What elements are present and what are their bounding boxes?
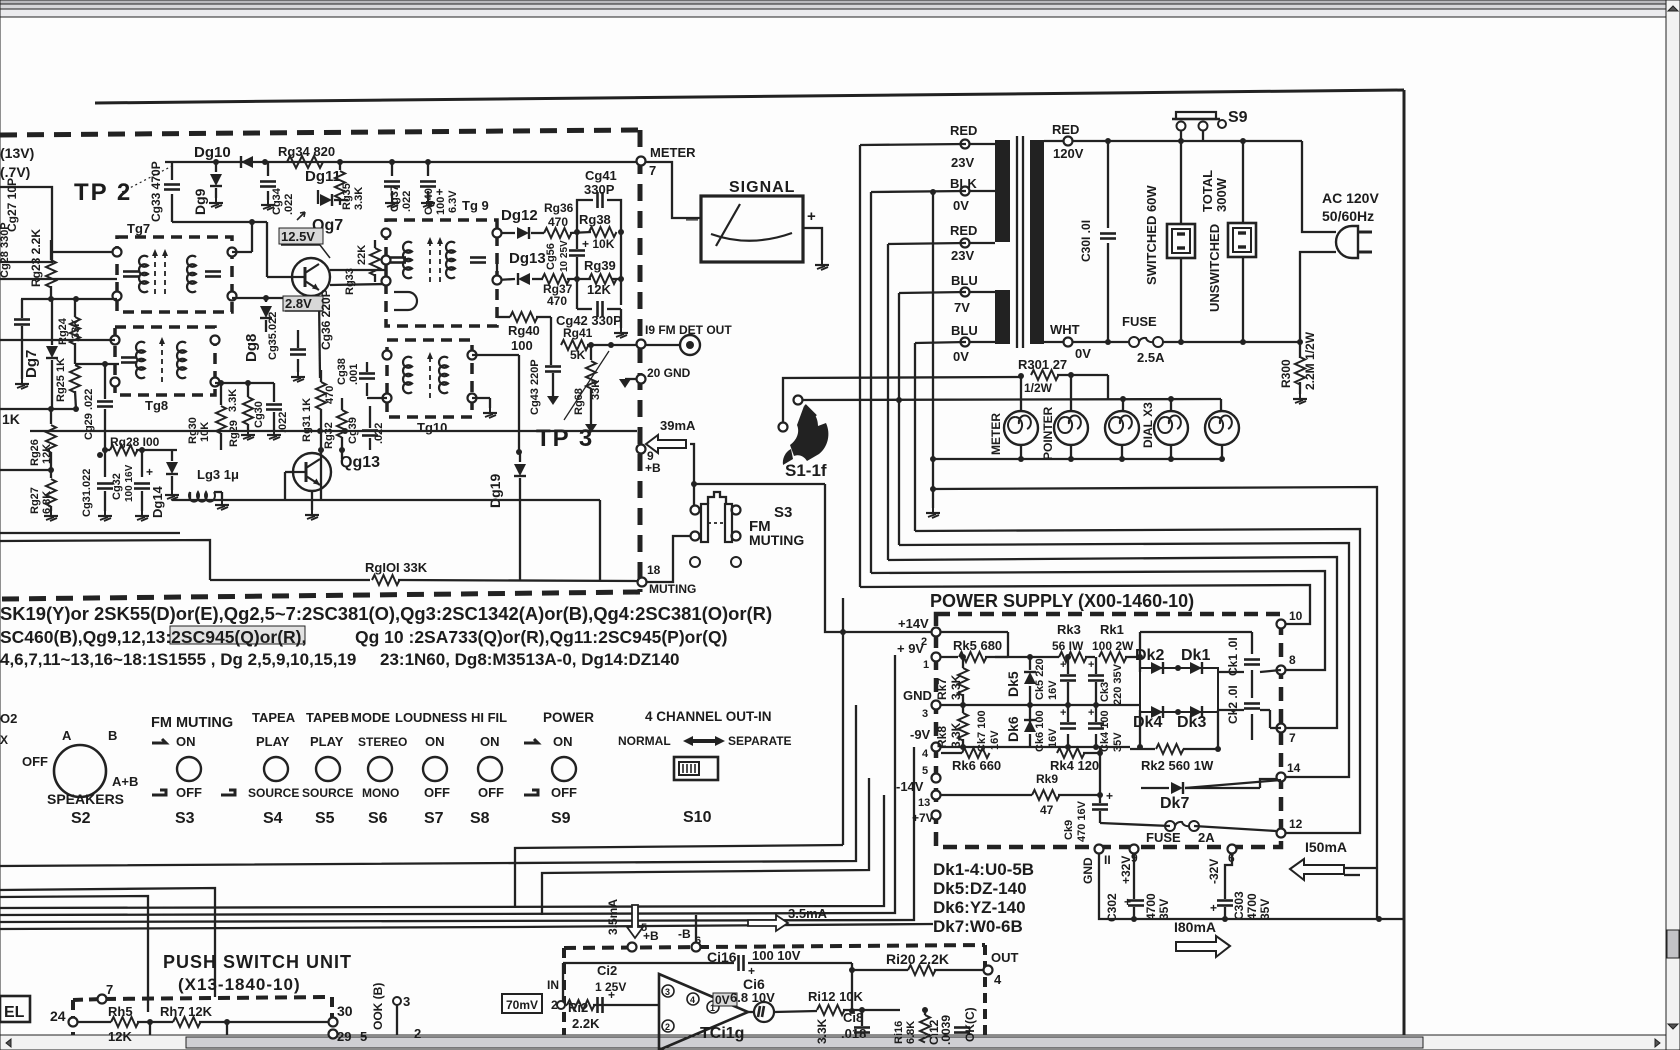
svg-text:20 GND: 20 GND [647, 366, 691, 380]
svg-text:C303: C303 [1232, 891, 1246, 920]
svg-text:Rk8: Rk8 [935, 726, 949, 748]
svg-text:18: 18 [647, 563, 661, 577]
svg-text:50/60Hz: 50/60Hz [1322, 208, 1374, 224]
svg-text:0V: 0V [953, 198, 969, 213]
svg-text:MUTING: MUTING [649, 582, 696, 596]
svg-text:Ck7 100: Ck7 100 [976, 710, 988, 752]
svg-text:Cg29 .022: Cg29 .022 [83, 389, 95, 440]
svg-text:OFF: OFF [424, 785, 450, 800]
svg-text:MODE: MODE [351, 710, 390, 725]
svg-text:SIGNAL: SIGNAL [729, 179, 795, 196]
svg-text:(.7V): (.7V) [0, 164, 30, 180]
svg-text:Rg38: Rg38 [579, 212, 611, 227]
svg-text:SWITCHED 60W: SWITCHED 60W [1144, 185, 1159, 285]
svg-text:FUSE: FUSE [1122, 314, 1157, 329]
svg-text:AC 120V: AC 120V [1322, 190, 1379, 206]
svg-text:S8: S8 [470, 810, 490, 827]
svg-text:.0039: .0039 [939, 1015, 953, 1045]
svg-text:BLU: BLU [951, 273, 978, 288]
svg-text:OFF: OFF [22, 754, 48, 769]
svg-text:A: A [62, 728, 72, 743]
svg-text:8: 8 [1289, 653, 1296, 667]
svg-text:12K: 12K [587, 282, 611, 297]
svg-text:S3: S3 [774, 504, 792, 521]
svg-text:HI FIL: HI FIL [471, 710, 507, 725]
svg-text:Rg33: Rg33 [344, 268, 356, 295]
svg-text:S9: S9 [551, 810, 571, 827]
svg-text:10 25V: 10 25V [559, 240, 570, 272]
svg-text:470 16V: 470 16V [1076, 800, 1088, 842]
svg-text:23:1N60, Dg8:M3513A-0, Dg14:DZ: 23:1N60, Dg8:M3513A-0, Dg14:DZ140 [380, 650, 680, 669]
svg-text:Rk1: Rk1 [1100, 622, 1124, 637]
svg-text:7V: 7V [954, 300, 970, 315]
svg-text:TCi1g: TCi1g [700, 1025, 744, 1042]
svg-text:+32V: +32V [1119, 856, 1133, 884]
svg-text:Ck9: Ck9 [1063, 820, 1075, 840]
svg-text:+: + [1124, 895, 1131, 909]
svg-text:I50mA: I50mA [1305, 839, 1347, 855]
svg-text:C302: C302 [1105, 893, 1119, 922]
svg-text:Dg7: Dg7 [23, 350, 40, 378]
svg-text:SC460(B),Qg9,12,13:2SC945(Q)or: SC460(B),Qg9,12,13:2SC945(Q)or(R), [0, 627, 306, 647]
svg-text:+: + [1088, 707, 1094, 719]
svg-text:Rg35: Rg35 [341, 183, 353, 210]
svg-text:S4: S4 [263, 810, 283, 827]
svg-text:IN: IN [547, 978, 559, 992]
svg-text:GND: GND [903, 688, 932, 703]
svg-text:+ 10K: + 10K [582, 237, 615, 251]
svg-text:TP 3: TP 3 [536, 425, 594, 452]
svg-text:23V: 23V [951, 155, 974, 170]
svg-text:Ri16: Ri16 [893, 1021, 905, 1044]
svg-text:+7V: +7V [912, 811, 934, 825]
svg-text:Dk3: Dk3 [1177, 714, 1206, 731]
svg-text:TP 2: TP 2 [74, 179, 132, 206]
svg-text:30: 30 [337, 1003, 353, 1019]
svg-text:16V: 16V [1047, 680, 1059, 700]
svg-text:Cg35.022: Cg35.022 [267, 312, 279, 360]
svg-text:3: 3 [403, 994, 410, 1009]
svg-text:2.8V: 2.8V [285, 296, 312, 311]
svg-text:4 CHANNEL OUT-IN: 4 CHANNEL OUT-IN [645, 709, 772, 724]
svg-text:3.5mA: 3.5mA [788, 906, 828, 921]
svg-text:OFF: OFF [478, 785, 504, 800]
svg-text:WHT: WHT [1050, 322, 1080, 337]
svg-text:22K: 22K [356, 245, 368, 265]
svg-text:TOTAL: TOTAL [1200, 170, 1215, 212]
svg-text:23V: 23V [951, 248, 974, 263]
svg-text:Tg 9: Tg 9 [462, 198, 489, 213]
svg-text:S2: S2 [71, 810, 91, 827]
svg-text:4: 4 [690, 995, 695, 1005]
svg-text:4700: 4700 [1245, 893, 1259, 920]
svg-text:2.2M 1/2W: 2.2M 1/2W [1303, 331, 1317, 390]
svg-text:3.3K: 3.3K [227, 389, 239, 412]
svg-text:+: + [436, 185, 443, 199]
svg-text:.022: .022 [277, 412, 289, 433]
svg-text:PUSH SWITCH UNIT: PUSH SWITCH UNIT [163, 952, 352, 972]
svg-text:Dg13: Dg13 [509, 250, 546, 267]
svg-text:Rk2 560 1W: Rk2 560 1W [1141, 758, 1214, 773]
svg-text:Cg56: Cg56 [545, 243, 557, 270]
svg-text:OUT: OUT [991, 950, 1019, 965]
svg-text:Dk1: Dk1 [1181, 647, 1210, 664]
svg-text:RED: RED [1052, 122, 1079, 137]
svg-text:3.3K: 3.3K [949, 722, 963, 748]
svg-text:Rh7 12K: Rh7 12K [160, 1004, 213, 1019]
svg-text:.022: .022 [373, 423, 385, 444]
svg-text:MONO: MONO [362, 786, 399, 800]
svg-text:Tg10: Tg10 [417, 420, 447, 435]
svg-text:Dk6: Dk6 [1005, 716, 1021, 742]
svg-text:12K: 12K [108, 1029, 132, 1044]
svg-text:35V: 35V [1157, 899, 1171, 920]
svg-text:12.5V: 12.5V [281, 229, 315, 244]
svg-text:Rg36: Rg36 [544, 201, 574, 215]
svg-text:ON: ON [176, 734, 196, 749]
svg-text:Rg25 1K: Rg25 1K [55, 358, 67, 402]
svg-text:RED: RED [950, 123, 977, 138]
svg-text:R300: R300 [1279, 359, 1293, 388]
svg-text:7: 7 [1289, 731, 1296, 745]
svg-text:ON: ON [480, 734, 500, 749]
svg-text:B: B [108, 728, 117, 743]
svg-text:Dg19: Dg19 [487, 474, 503, 508]
svg-text:SK19(Y)or 2SK55(D)or(E),Qg2,5~: SK19(Y)or 2SK55(D)or(E),Qg2,5~7:2SC381(O… [0, 603, 772, 624]
svg-text:0V: 0V [1075, 346, 1091, 361]
svg-text:ON: ON [553, 734, 573, 749]
svg-text:14: 14 [1287, 761, 1301, 775]
svg-text:Cg32: Cg32 [111, 473, 123, 500]
svg-text:100: 100 [511, 338, 533, 353]
svg-text:LOUDNESS: LOUDNESS [395, 710, 468, 725]
svg-text:POINTER: POINTER [1041, 406, 1055, 460]
svg-text:Cg41: Cg41 [585, 168, 617, 183]
svg-text:+: + [1210, 901, 1217, 915]
svg-text:470: 470 [547, 294, 567, 308]
svg-text:PLAY: PLAY [256, 734, 290, 749]
svg-text:Dg11: Dg11 [305, 168, 341, 185]
svg-text:0V: 0V [953, 349, 969, 364]
svg-text:NORMAL: NORMAL [618, 734, 671, 748]
svg-text:RED: RED [950, 223, 977, 238]
svg-text:47: 47 [1040, 803, 1054, 817]
svg-text:OOK (B): OOK (B) [371, 983, 385, 1030]
svg-text:Dk5: Dk5 [1005, 671, 1021, 697]
svg-text:5: 5 [641, 922, 647, 934]
svg-text:DIAL X3: DIAL X3 [1141, 402, 1155, 448]
svg-text:EL: EL [4, 1004, 25, 1021]
svg-text:I80mA: I80mA [1174, 919, 1216, 935]
svg-text:3.3K: 3.3K [815, 1018, 829, 1044]
svg-text:6.3V: 6.3V [447, 190, 459, 213]
svg-text:FUSE: FUSE [1146, 830, 1181, 845]
svg-text:-14V: -14V [896, 779, 924, 794]
svg-text:5K: 5K [570, 348, 586, 362]
svg-text:A+B: A+B [112, 774, 138, 789]
svg-text:Rg28 I00: Rg28 I00 [110, 435, 160, 449]
svg-text:35V: 35V [1112, 732, 1124, 752]
svg-text:Cg28 330P: Cg28 330P [0, 222, 11, 278]
svg-text:1/2W: 1/2W [1024, 381, 1053, 395]
svg-text:70mV: 70mV [506, 998, 538, 1012]
svg-text:0V: 0V [715, 993, 730, 1007]
svg-text:4: 4 [994, 972, 1002, 987]
svg-text:POWER SUPPLY (X00-1460-10): POWER SUPPLY (X00-1460-10) [930, 591, 1194, 611]
svg-text:Ck3: Ck3 [1099, 682, 1111, 702]
svg-text:100 2W: 100 2W [1092, 639, 1134, 653]
svg-text:3: 3 [665, 987, 670, 997]
svg-text:Rk9: Rk9 [1036, 772, 1058, 786]
svg-text:S5: S5 [315, 810, 335, 827]
svg-text:Cg34: Cg34 [271, 187, 283, 215]
svg-text:S3: S3 [175, 810, 195, 827]
svg-text:6.8 10V: 6.8 10V [730, 990, 775, 1005]
svg-text:Dk7:W0-6B: Dk7:W0-6B [933, 917, 1023, 936]
svg-text:35V: 35V [1258, 899, 1272, 920]
svg-text:OFF: OFF [551, 785, 577, 800]
svg-text:(13V): (13V) [0, 145, 34, 161]
svg-text:UNSWITCHED: UNSWITCHED [1207, 224, 1222, 312]
svg-text:Tg7: Tg7 [127, 221, 150, 236]
svg-text:+: + [1088, 659, 1094, 671]
svg-text:220 35V: 220 35V [1112, 663, 1124, 705]
svg-text:SOURCE: SOURCE [248, 786, 299, 800]
svg-text:470: 470 [324, 386, 336, 404]
svg-text:METER: METER [650, 145, 696, 160]
svg-text:1: 1 [923, 659, 929, 671]
svg-text:Lg3 1μ: Lg3 1μ [197, 467, 239, 482]
svg-text:3: 3 [922, 708, 928, 720]
svg-text:2: 2 [665, 1022, 670, 1032]
svg-text:Dk4: Dk4 [1133, 714, 1162, 731]
svg-text:.001: .001 [348, 364, 360, 385]
svg-text:Ci2: Ci2 [597, 963, 617, 978]
svg-text:+: + [807, 208, 816, 225]
svg-text:Cg31.022: Cg31.022 [81, 469, 93, 517]
svg-text:+: + [1106, 789, 1113, 803]
svg-text:6.8K: 6.8K [905, 1021, 917, 1044]
svg-text:4,6,7,11~13,16~18:1S1555 , Dg: 4,6,7,11~13,16~18:1S1555 , Dg 2,5,9,10,1… [0, 650, 356, 669]
svg-text:2: 2 [414, 1026, 421, 1041]
svg-text:Qg13: Qg13 [340, 454, 380, 471]
svg-text:.022: .022 [283, 194, 295, 215]
svg-text:2A: 2A [1198, 830, 1215, 845]
svg-text:Rg32: Rg32 [323, 422, 335, 449]
svg-text:FM MUTING: FM MUTING [151, 715, 233, 731]
svg-text:+: + [146, 465, 153, 479]
svg-text:Rk5 680: Rk5 680 [953, 638, 1002, 653]
svg-text:Dk6:YZ-140: Dk6:YZ-140 [933, 898, 1026, 917]
svg-text:Dg9: Dg9 [192, 188, 208, 215]
svg-text:+14V: +14V [898, 616, 929, 631]
svg-text:C30I .0I: C30I .0I [1079, 220, 1093, 262]
svg-text:7: 7 [106, 982, 113, 997]
svg-text:5: 5 [922, 765, 928, 777]
svg-text:Ck1 .0I: Ck1 .0I [1226, 637, 1240, 676]
svg-text:-B: -B [678, 927, 691, 941]
svg-text:Dk5:DZ-140: Dk5:DZ-140 [933, 879, 1027, 898]
svg-text:+B: +B [645, 461, 661, 475]
svg-text:TAPEB: TAPEB [306, 710, 349, 725]
svg-text:7: 7 [649, 163, 656, 178]
svg-text:OK(C): OK(C) [963, 1007, 977, 1042]
svg-text:300W: 300W [1214, 177, 1229, 212]
svg-text:Qg 10 :2SA733(Q)or(R),Qg11:2SC: Qg 10 :2SA733(Q)or(R),Qg11:2SC945(P)or(Q… [355, 627, 727, 647]
svg-text:METER: METER [989, 413, 1003, 455]
svg-text:Ck5 220: Ck5 220 [1034, 658, 1046, 700]
svg-text:POWER: POWER [543, 710, 594, 725]
svg-text:29: 29 [337, 1029, 351, 1044]
svg-text:Dk1-4:U0-5B: Dk1-4:U0-5B [933, 860, 1034, 879]
svg-text:13: 13 [918, 797, 930, 809]
svg-text:Dg12: Dg12 [501, 207, 538, 224]
svg-text:Rk4 120: Rk4 120 [1050, 758, 1099, 773]
svg-text:2.5A: 2.5A [1137, 350, 1165, 365]
svg-text:Tg8: Tg8 [145, 398, 168, 413]
svg-text:TAPEA: TAPEA [252, 710, 296, 725]
svg-text:Ri20 2.2K: Ri20 2.2K [886, 951, 949, 967]
svg-text:SEPARATE: SEPARATE [728, 734, 792, 748]
svg-text:Rg41: Rg41 [563, 326, 593, 340]
svg-text:470: 470 [548, 215, 568, 229]
svg-text:Dg14: Dg14 [150, 485, 165, 518]
svg-text:RgIOI 33K: RgIOI 33K [365, 560, 428, 575]
svg-text:PLAY: PLAY [310, 734, 344, 749]
svg-text:Cg38: Cg38 [336, 358, 348, 385]
svg-text:-9V: -9V [910, 727, 931, 742]
svg-text:X: X [0, 733, 8, 747]
svg-text:MUTING: MUTING [749, 532, 804, 548]
svg-text:+: + [1060, 707, 1066, 719]
svg-text:Rg31 1K: Rg31 1K [301, 398, 313, 442]
svg-text:-32V: -32V [1207, 859, 1221, 884]
svg-text:O2: O2 [0, 711, 17, 726]
svg-text:S7: S7 [424, 810, 444, 827]
svg-text:Rh5: Rh5 [108, 1004, 133, 1019]
svg-text:Rk3: Rk3 [1057, 622, 1081, 637]
svg-text:OFF: OFF [176, 785, 202, 800]
svg-text:SPEAKERS: SPEAKERS [47, 791, 124, 807]
svg-text:Rg29: Rg29 [228, 420, 240, 447]
svg-text:S9: S9 [1228, 109, 1248, 126]
svg-text:S6: S6 [368, 810, 388, 827]
svg-text:2.2K: 2.2K [572, 1016, 600, 1031]
svg-text:Cg36 220P: Cg36 220P [319, 289, 333, 350]
svg-text:Rg27: Rg27 [29, 487, 41, 514]
svg-text:Dg8: Dg8 [243, 334, 260, 362]
svg-text:120V: 120V [1053, 146, 1084, 161]
svg-text:BLU: BLU [951, 323, 978, 338]
svg-text:Cg43 220P: Cg43 220P [529, 359, 541, 415]
svg-text:Cg30: Cg30 [253, 401, 265, 428]
svg-text:+: + [608, 988, 615, 1002]
svg-text:Cg37: Cg37 [389, 185, 401, 212]
svg-text:Rg39: Rg39 [584, 258, 616, 273]
svg-text:4: 4 [922, 748, 929, 760]
svg-text:II: II [1104, 853, 1111, 867]
svg-text:Ck2 .0I: Ck2 .0I [1226, 685, 1240, 724]
svg-text:.022: .022 [401, 191, 413, 212]
svg-text:16V: 16V [1047, 728, 1059, 748]
svg-text:Dg10: Dg10 [194, 144, 231, 161]
svg-text:39mA: 39mA [660, 418, 696, 433]
svg-text:Rk6 660: Rk6 660 [952, 758, 1001, 773]
svg-text:Rg34 820: Rg34 820 [278, 144, 335, 159]
svg-text:Rk7: Rk7 [935, 678, 949, 700]
svg-text:+: + [1060, 659, 1066, 671]
svg-text:12: 12 [1289, 817, 1303, 831]
svg-text:Cg33 470P: Cg33 470P [149, 161, 163, 222]
svg-text:100 16V: 100 16V [124, 464, 135, 502]
svg-text:Ck4 100: Ck4 100 [1099, 710, 1111, 752]
svg-text:4700: 4700 [1144, 893, 1158, 920]
svg-text:Rg26: Rg26 [29, 439, 41, 466]
svg-text:S1-1f: S1-1f [785, 461, 827, 480]
svg-text:S10: S10 [683, 809, 712, 826]
svg-text:ON: ON [425, 734, 445, 749]
svg-text:5: 5 [360, 1029, 367, 1044]
svg-text:3.3K: 3.3K [949, 674, 963, 700]
svg-text:Ri12 10K: Ri12 10K [808, 989, 864, 1004]
svg-text:+ 9V: + 9V [897, 641, 924, 656]
svg-text:Rg40: Rg40 [508, 323, 540, 338]
svg-text:24: 24 [50, 1008, 66, 1024]
svg-text:Ck6 100: Ck6 100 [1034, 710, 1046, 752]
svg-text:100 10V: 100 10V [752, 948, 801, 963]
svg-text:Rg68: Rg68 [573, 388, 585, 415]
svg-text:1K: 1K [2, 411, 20, 427]
svg-text:STEREO: STEREO [358, 735, 407, 749]
svg-text:10: 10 [1289, 609, 1303, 623]
svg-text:SOURCE: SOURCE [302, 786, 353, 800]
svg-text:100: 100 [435, 197, 447, 215]
svg-text:GND: GND [1081, 857, 1095, 884]
svg-text:Dk7: Dk7 [1160, 795, 1189, 812]
svg-text:(X13-1840-10): (X13-1840-10) [178, 975, 301, 994]
svg-text:3.5mA: 3.5mA [606, 899, 620, 935]
svg-text:3.3K: 3.3K [353, 187, 365, 210]
svg-text:330P: 330P [584, 182, 615, 197]
